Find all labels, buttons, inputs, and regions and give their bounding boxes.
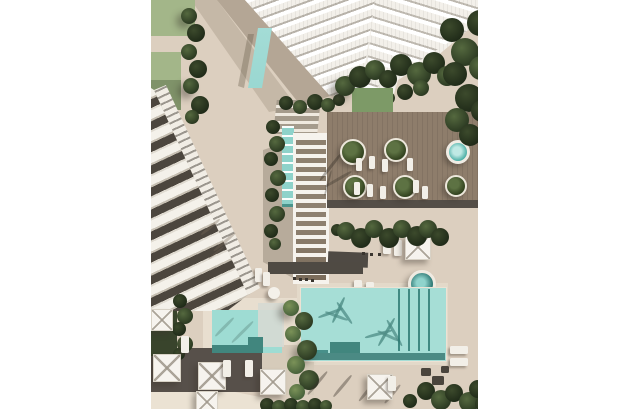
sun-lounger <box>367 184 373 197</box>
hedge <box>172 322 186 336</box>
tree-planter <box>445 175 467 197</box>
tree <box>187 24 205 42</box>
sun-lounger <box>450 346 468 354</box>
dark-walkway <box>268 262 363 274</box>
sun-lounger <box>382 159 388 172</box>
shrub <box>266 120 280 134</box>
sun-lounger <box>255 268 262 282</box>
tree <box>181 8 197 24</box>
deck-chair-dark <box>421 368 431 376</box>
pool-lane-line <box>428 289 430 351</box>
small-pool-notch <box>248 337 263 353</box>
tree <box>189 60 207 78</box>
tree <box>283 300 299 316</box>
sun-lounger <box>388 376 396 391</box>
deck-chair-dark <box>432 376 444 385</box>
tree <box>443 62 467 86</box>
sun-lounger <box>407 158 413 171</box>
shrub <box>269 206 285 222</box>
chair-dot <box>305 278 308 281</box>
shrub <box>264 152 278 166</box>
pool-lane-line <box>398 289 400 351</box>
pool-lane-line <box>418 289 420 351</box>
tree <box>285 326 301 342</box>
umbrella <box>198 362 226 390</box>
umbrella <box>151 309 173 331</box>
hedge <box>320 400 332 409</box>
umbrella <box>196 391 218 409</box>
table-dot <box>378 253 381 256</box>
shrub <box>265 188 279 202</box>
hedge <box>279 96 293 110</box>
tree <box>185 110 199 124</box>
tree <box>397 84 413 100</box>
sun-lounger <box>422 186 428 199</box>
tree <box>181 44 197 60</box>
sun-lounger <box>245 360 253 377</box>
sun-lounger <box>263 272 270 286</box>
tree <box>413 80 429 96</box>
chair-dot <box>299 278 302 281</box>
chair-dot <box>311 279 314 282</box>
sun-lounger <box>181 336 189 353</box>
sun-lounger <box>223 360 231 377</box>
tree-planter <box>384 138 408 162</box>
shrub <box>269 238 281 250</box>
table-dot <box>362 252 365 255</box>
hedge <box>293 100 307 114</box>
table-dot <box>370 253 373 256</box>
page: { "scene": { "type": "aerial-architectur… <box>0 0 630 409</box>
deck-chair-dark <box>441 366 449 373</box>
sun-lounger <box>369 156 375 169</box>
round-table <box>268 287 280 299</box>
umbrella <box>260 369 286 395</box>
tree <box>403 394 417 408</box>
aerial-render <box>151 0 478 409</box>
sun-lounger <box>356 158 362 171</box>
hedge <box>173 294 187 308</box>
sun-lounger <box>354 182 360 195</box>
pool-bottom-edge <box>300 353 445 360</box>
ground-palm-shadow <box>332 374 352 397</box>
tree-planter <box>340 139 366 165</box>
umbrella <box>153 354 181 382</box>
sun-lounger <box>380 186 386 199</box>
shrub <box>270 170 286 186</box>
shrub <box>264 224 278 238</box>
sun-lounger <box>413 180 419 193</box>
pool-lane-line <box>408 289 410 351</box>
hedge <box>431 228 449 246</box>
deck-edge <box>327 200 478 208</box>
tree <box>459 124 478 146</box>
tree <box>183 78 199 94</box>
lawn-patch <box>352 88 393 112</box>
shrub <box>269 136 285 152</box>
chair-dot <box>293 277 296 280</box>
sun-lounger <box>450 358 468 366</box>
